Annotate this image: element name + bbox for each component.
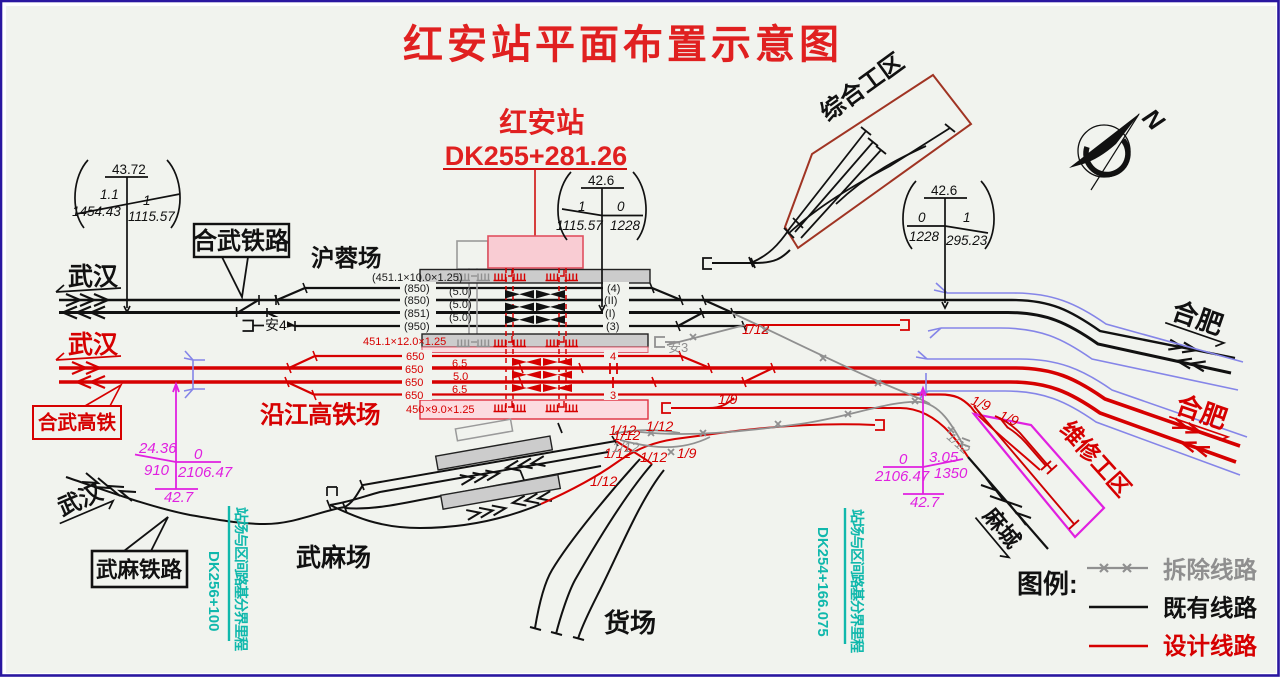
svg-text:武汉: 武汉 <box>68 263 119 291</box>
svg-text:450: 450 <box>406 404 424 416</box>
svg-text:沿江高铁场: 沿江高铁场 <box>260 400 380 429</box>
svg-text:1115.57: 1115.57 <box>556 218 603 233</box>
svg-text:(5.0): (5.0) <box>449 299 472 311</box>
svg-text:货场: 货场 <box>604 608 656 638</box>
svg-text:DK254+166.075: DK254+166.075 <box>814 527 831 637</box>
svg-text:2106.47: 2106.47 <box>177 464 233 481</box>
svg-text:DK255+281.26: DK255+281.26 <box>445 141 627 171</box>
svg-text:站场与区间路基分界里程: 站场与区间路基分界里程 <box>232 507 249 651</box>
svg-text:1/9: 1/9 <box>677 445 697 461</box>
svg-text:红安站: 红安站 <box>499 106 585 138</box>
svg-text:451.1×12.0×1.25: 451.1×12.0×1.25 <box>363 336 446 348</box>
svg-text:(850): (850) <box>404 283 430 295</box>
svg-text:(5.0): (5.0) <box>449 286 472 298</box>
svg-text:(3): (3) <box>606 321 619 333</box>
svg-text:1/12: 1/12 <box>609 422 636 438</box>
svg-text:0: 0 <box>918 210 926 225</box>
svg-text:3: 3 <box>610 390 616 402</box>
svg-text:设计线路: 设计线路 <box>1163 632 1257 659</box>
svg-text:4: 4 <box>610 351 616 363</box>
svg-text:1: 1 <box>963 210 971 225</box>
svg-text:0: 0 <box>617 199 625 214</box>
svg-text:295.23: 295.23 <box>945 233 988 248</box>
svg-text:1/12: 1/12 <box>640 449 667 465</box>
svg-text:(850): (850) <box>404 295 430 307</box>
svg-text:沪蓉场: 沪蓉场 <box>311 245 382 271</box>
svg-text:42.6: 42.6 <box>931 183 957 198</box>
svg-text:(I): (I) <box>605 308 615 320</box>
svg-text:红安站平面布置示意图: 红安站平面布置示意图 <box>403 23 843 67</box>
svg-text:1228: 1228 <box>909 229 940 244</box>
svg-text:(4): (4) <box>607 283 620 295</box>
svg-text:×9.0×1.25: ×9.0×1.25 <box>425 404 475 416</box>
svg-text:1/9: 1/9 <box>718 391 738 407</box>
svg-text:既有线路: 既有线路 <box>1163 594 1257 621</box>
svg-text:DK256+100: DK256+100 <box>205 551 222 631</box>
svg-text:1: 1 <box>143 193 151 208</box>
svg-text:1115.57: 1115.57 <box>128 209 175 224</box>
svg-text:1228: 1228 <box>610 218 641 233</box>
svg-text:武麻铁路: 武麻铁路 <box>96 557 183 582</box>
svg-text:42.6: 42.6 <box>588 173 614 188</box>
svg-text:(851): (851) <box>404 308 430 320</box>
svg-text:武麻场: 武麻场 <box>296 543 371 572</box>
svg-text:650: 650 <box>405 390 423 402</box>
svg-text:(5.0): (5.0) <box>449 312 472 324</box>
svg-text:1/12: 1/12 <box>742 321 769 337</box>
svg-text:合武铁路: 合武铁路 <box>193 227 290 255</box>
svg-text:6.5: 6.5 <box>452 358 467 370</box>
svg-text:43.72: 43.72 <box>112 162 146 177</box>
svg-text:0: 0 <box>194 446 203 463</box>
svg-text:1350: 1350 <box>934 465 968 482</box>
svg-text:1/12: 1/12 <box>612 439 639 455</box>
svg-text:650: 650 <box>406 351 424 363</box>
svg-text:站场与区间路基分界里程: 站场与区间路基分界里程 <box>848 509 865 653</box>
svg-text:安4: 安4 <box>265 317 287 333</box>
svg-text:武汉: 武汉 <box>68 331 119 359</box>
svg-text:650: 650 <box>405 364 423 376</box>
svg-text:合武高铁: 合武高铁 <box>38 411 117 434</box>
svg-text:1/12: 1/12 <box>646 418 673 434</box>
svg-text:5.0: 5.0 <box>453 371 468 383</box>
svg-text:0: 0 <box>899 451 908 468</box>
svg-text:3.05: 3.05 <box>929 449 959 466</box>
svg-text:650: 650 <box>405 377 423 389</box>
svg-text:2106.47: 2106.47 <box>874 468 930 485</box>
svg-text:24.36: 24.36 <box>138 440 177 457</box>
svg-text:安3: 安3 <box>668 340 688 355</box>
svg-text:6.5: 6.5 <box>452 384 467 396</box>
svg-text:42.7: 42.7 <box>164 489 194 506</box>
svg-text:910: 910 <box>144 462 170 479</box>
svg-text:1/12: 1/12 <box>590 473 617 489</box>
svg-text:(950): (950) <box>404 321 430 333</box>
svg-text:1: 1 <box>578 199 586 214</box>
svg-text:1454.43: 1454.43 <box>72 204 121 219</box>
svg-text:拆除线路: 拆除线路 <box>1163 556 1257 583</box>
svg-text:(II): (II) <box>604 295 617 307</box>
svg-text:图例:: 图例: <box>1017 569 1078 599</box>
svg-text:42.7: 42.7 <box>910 494 940 511</box>
svg-text:1.1: 1.1 <box>100 187 119 202</box>
